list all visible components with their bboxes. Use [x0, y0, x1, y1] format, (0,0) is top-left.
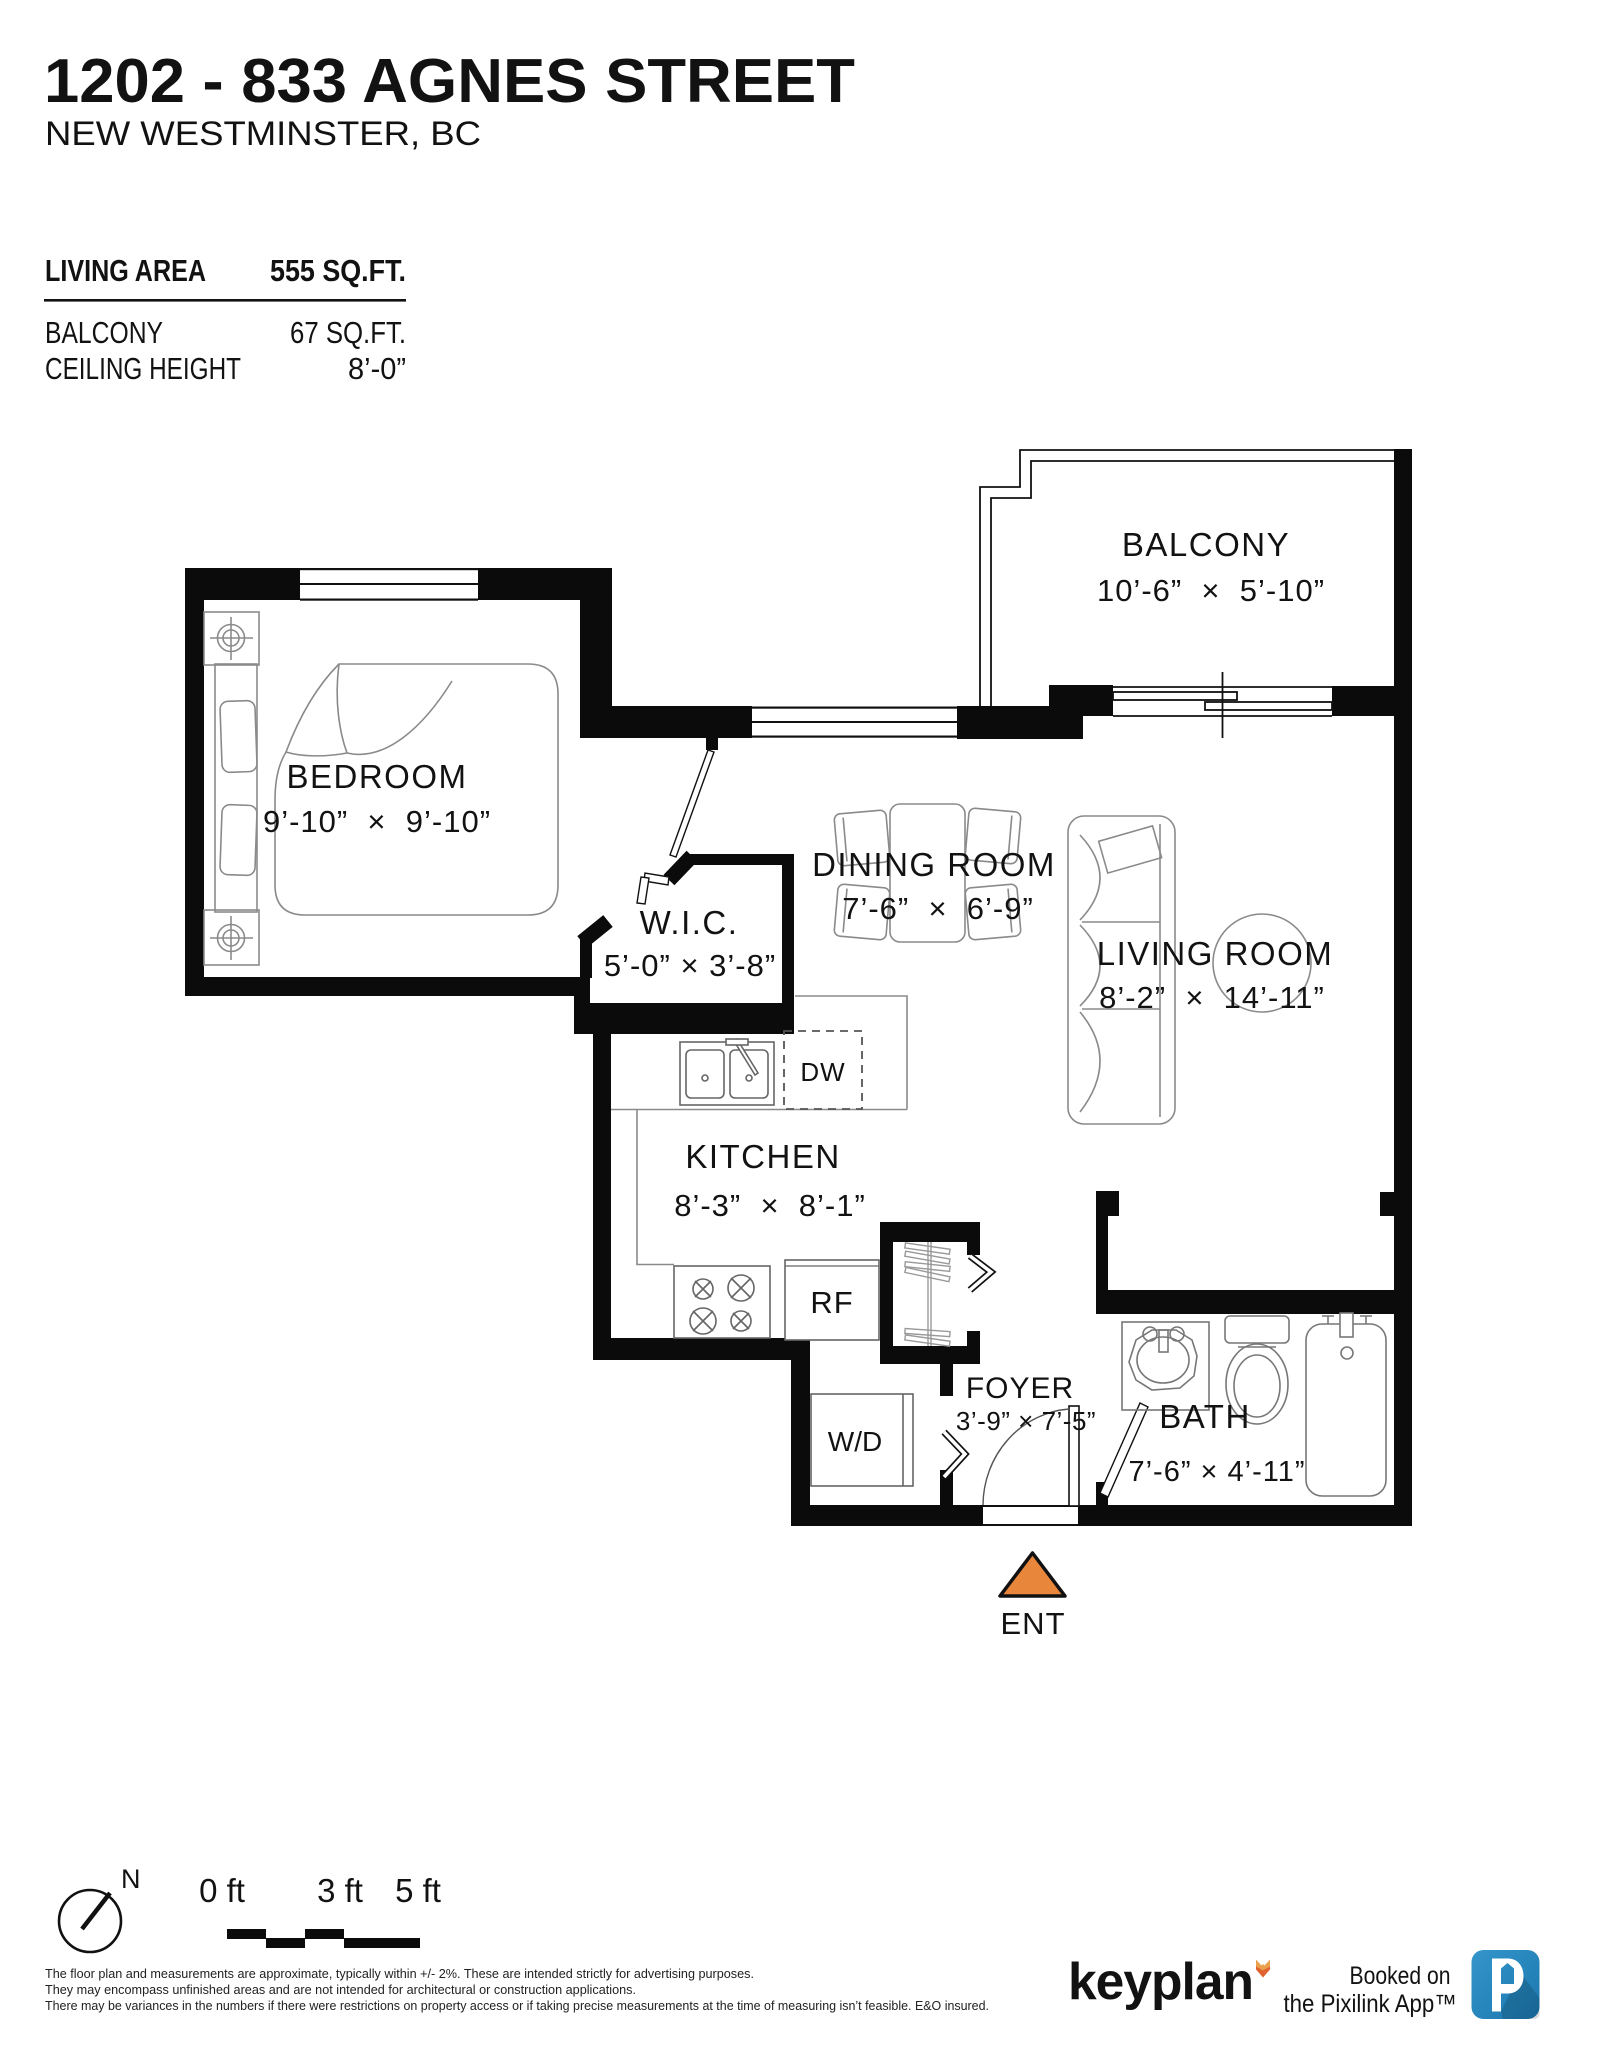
svg-text:3 ft: 3 ft — [317, 1872, 363, 1909]
svg-text:W/D: W/D — [828, 1426, 882, 1457]
svg-text:FOYER: FOYER — [966, 1372, 1074, 1405]
svg-text:10’-6” × 5’-10”: 10’-6” × 5’-10” — [1097, 573, 1325, 608]
svg-text:The floor plan and measurement: The floor plan and measurements are appr… — [45, 1966, 754, 1981]
svg-text:the Pixilink App™: the Pixilink App™ — [1284, 1990, 1457, 2018]
svg-text:keyplan: keyplan — [1068, 1953, 1253, 2011]
svg-text:BALCONY: BALCONY — [1122, 526, 1290, 563]
svg-text:BEDROOM: BEDROOM — [286, 758, 467, 795]
svg-text:CEILING HEIGHT: CEILING HEIGHT — [45, 351, 241, 386]
svg-text:There may be variances in the: There may be variances in the numbers if… — [45, 1998, 989, 2013]
svg-text:5 ft: 5 ft — [395, 1872, 441, 1909]
svg-text:NEW WESTMINSTER, BC: NEW WESTMINSTER, BC — [45, 115, 481, 153]
svg-text:67 SQ.FT.: 67 SQ.FT. — [290, 315, 406, 350]
svg-text:W.I.C.: W.I.C. — [640, 904, 739, 941]
svg-text:5’-0” × 3’-8”: 5’-0” × 3’-8” — [604, 948, 776, 983]
svg-text:KITCHEN: KITCHEN — [685, 1138, 840, 1175]
svg-text:DINING ROOM: DINING ROOM — [812, 846, 1056, 883]
svg-text:8’-2” × 14’-11”: 8’-2” × 14’-11” — [1099, 980, 1325, 1015]
svg-text:RF: RF — [810, 1285, 853, 1320]
svg-text:8’-0”: 8’-0” — [348, 351, 406, 386]
svg-text:0 ft: 0 ft — [199, 1872, 245, 1909]
svg-text:ENT: ENT — [1001, 1606, 1066, 1641]
svg-text:555 SQ.FT.: 555 SQ.FT. — [270, 253, 406, 288]
svg-text:9’-10” × 9’-10”: 9’-10” × 9’-10” — [263, 804, 491, 839]
svg-text:8’-3” × 8’-1”: 8’-3” × 8’-1” — [674, 1188, 866, 1223]
svg-text:7’-6” × 6’-9”: 7’-6” × 6’-9” — [842, 891, 1034, 926]
svg-text:1202 - 833 AGNES STREET: 1202 - 833 AGNES STREET — [44, 47, 855, 116]
svg-text:BATH: BATH — [1159, 1398, 1251, 1435]
svg-text:7’-6” × 4’-11”: 7’-6” × 4’-11” — [1128, 1456, 1305, 1488]
svg-text:They may encompass unfinished: They may encompass unfinished areas and … — [45, 1982, 636, 1997]
svg-text:3’-9” × 7’-5”: 3’-9” × 7’-5” — [956, 1406, 1096, 1436]
svg-text:BALCONY: BALCONY — [45, 315, 163, 350]
svg-text:LIVING ROOM: LIVING ROOM — [1097, 935, 1334, 972]
svg-text:Booked on: Booked on — [1350, 1962, 1451, 1990]
svg-text:LIVING AREA: LIVING AREA — [45, 253, 206, 288]
svg-text:DW: DW — [800, 1057, 845, 1087]
svg-text:N: N — [121, 1864, 141, 1894]
